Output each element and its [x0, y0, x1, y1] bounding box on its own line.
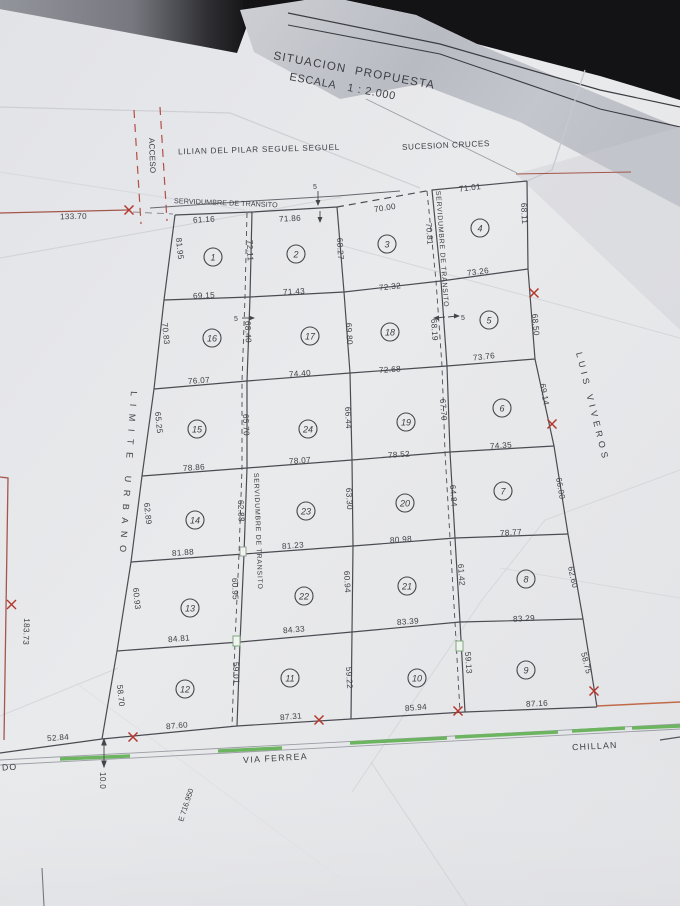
- svg-text:3: 3: [384, 240, 389, 250]
- svg-text:15: 15: [192, 425, 203, 435]
- svg-text:5: 5: [461, 315, 465, 322]
- svg-text:78.86: 78.86: [183, 462, 206, 473]
- svg-text:68.27: 68.27: [335, 238, 345, 261]
- svg-text:22: 22: [298, 592, 309, 602]
- svg-text:69.15: 69.15: [193, 291, 216, 301]
- svg-text:72.68: 72.68: [379, 364, 402, 375]
- svg-text:63.30: 63.30: [344, 488, 354, 511]
- svg-text:59.01: 59.01: [231, 662, 241, 684]
- svg-text:1: 1: [210, 253, 215, 263]
- svg-text:DO: DO: [2, 762, 18, 773]
- svg-text:72.11: 72.11: [245, 240, 255, 262]
- svg-text:19: 19: [401, 418, 411, 428]
- svg-text:18: 18: [385, 328, 395, 338]
- svg-text:87.31: 87.31: [280, 711, 303, 722]
- svg-text:11: 11: [285, 674, 294, 684]
- svg-text:20: 20: [399, 499, 410, 509]
- svg-text:64.84: 64.84: [448, 485, 459, 508]
- svg-text:5: 5: [234, 316, 238, 323]
- svg-text:59.22: 59.22: [344, 667, 354, 690]
- svg-text:83.39: 83.39: [397, 616, 420, 627]
- svg-text:71.43: 71.43: [283, 287, 306, 297]
- svg-text:68.19: 68.19: [429, 319, 440, 342]
- svg-text:61.16: 61.16: [193, 215, 216, 225]
- svg-text:12: 12: [180, 685, 190, 695]
- svg-text:52.84: 52.84: [47, 733, 70, 744]
- svg-text:87.16: 87.16: [526, 699, 549, 709]
- svg-text:9: 9: [523, 666, 528, 676]
- svg-text:87.60: 87.60: [166, 720, 189, 731]
- svg-text:8: 8: [523, 575, 528, 585]
- svg-text:67.70: 67.70: [438, 399, 449, 422]
- svg-text:81.88: 81.88: [172, 547, 195, 558]
- svg-text:81.23: 81.23: [282, 540, 305, 551]
- svg-text:78.07: 78.07: [289, 455, 312, 466]
- svg-text:85.94: 85.94: [405, 702, 428, 713]
- svg-text:2: 2: [292, 250, 298, 260]
- svg-text:78.52: 78.52: [388, 449, 411, 460]
- svg-text:17: 17: [305, 332, 316, 342]
- svg-text:83.29: 83.29: [513, 614, 536, 624]
- svg-text:23: 23: [300, 507, 311, 517]
- svg-text:60.94: 60.94: [342, 571, 352, 594]
- svg-text:13: 13: [185, 604, 195, 614]
- svg-text:16: 16: [207, 334, 217, 344]
- svg-text:10: 10: [412, 674, 422, 684]
- svg-text:61.42: 61.42: [456, 564, 467, 587]
- svg-text:65.70: 65.70: [241, 414, 251, 436]
- svg-text:24: 24: [302, 425, 313, 435]
- svg-text:62.88: 62.88: [236, 500, 246, 522]
- svg-text:133.70: 133.70: [60, 212, 87, 222]
- svg-text:78.77: 78.77: [500, 527, 523, 538]
- svg-text:5: 5: [313, 184, 317, 191]
- svg-text:76.07: 76.07: [188, 375, 211, 386]
- svg-text:183.73: 183.73: [21, 618, 31, 645]
- svg-text:84.81: 84.81: [168, 633, 191, 644]
- svg-text:ACCESO: ACCESO: [147, 138, 157, 174]
- svg-text:68.50: 68.50: [530, 313, 541, 336]
- svg-text:66.44: 66.44: [343, 407, 353, 430]
- svg-text:84.33: 84.33: [283, 624, 306, 635]
- svg-text:6: 6: [499, 404, 504, 414]
- svg-text:70.81: 70.81: [424, 223, 435, 246]
- svg-text:60.95: 60.95: [230, 578, 240, 600]
- svg-text:14: 14: [190, 516, 200, 526]
- svg-text:71.86: 71.86: [279, 214, 302, 224]
- svg-text:69.80: 69.80: [344, 323, 354, 346]
- svg-text:21: 21: [401, 582, 412, 592]
- svg-text:10.0: 10.0: [98, 772, 107, 789]
- svg-text:4: 4: [477, 224, 482, 234]
- svg-text:68.11: 68.11: [519, 203, 529, 225]
- svg-text:74.40: 74.40: [289, 368, 312, 379]
- svg-text:59.13: 59.13: [463, 652, 474, 675]
- svg-text:68.40: 68.40: [243, 321, 253, 343]
- svg-text:80.98: 80.98: [390, 534, 413, 545]
- svg-text:74.35: 74.35: [490, 440, 513, 451]
